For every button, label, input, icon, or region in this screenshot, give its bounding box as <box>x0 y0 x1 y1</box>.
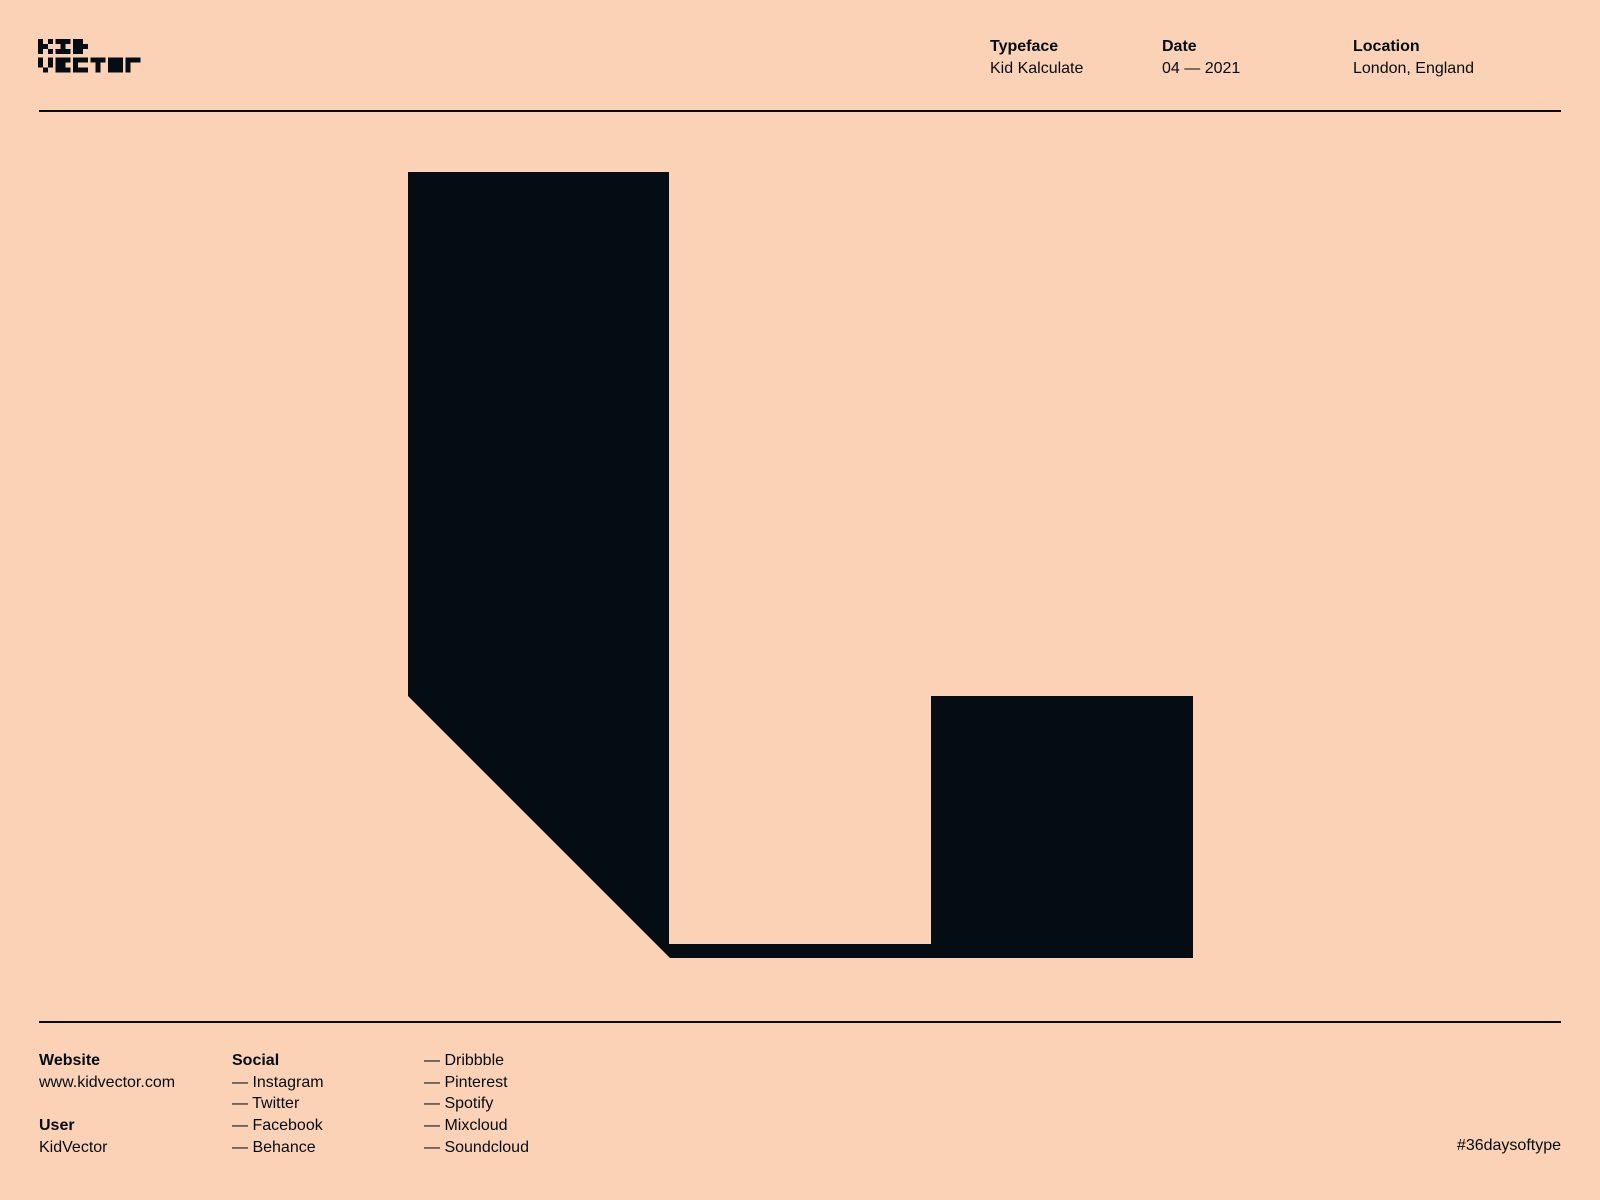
social-link-twitter[interactable]: — Twitter <box>232 1093 324 1115</box>
social-link-pinterest[interactable]: — Pinterest <box>424 1072 529 1094</box>
letter-glyph-shape <box>408 172 1193 958</box>
footer-social-column-2: — Dribbble — Pinterest — Spotify — Mixcl… <box>424 1050 529 1159</box>
user-label: User <box>39 1115 107 1137</box>
hashtag-36daysoftype: #36daysoftype <box>1457 1135 1561 1157</box>
social-link-dribbble[interactable]: — Dribbble <box>424 1050 529 1072</box>
social-link-behance[interactable]: — Behance <box>232 1137 324 1159</box>
social-link-instagram[interactable]: — Instagram <box>232 1072 324 1094</box>
letter-glyph-artwork <box>0 0 1600 1200</box>
social-link-spotify[interactable]: — Spotify <box>424 1093 529 1115</box>
footer-divider <box>39 1021 1561 1023</box>
footer-user-block: User KidVector <box>39 1115 107 1158</box>
poster-page: Typeface Kid Kalculate Date 04 — 2021 Lo… <box>0 0 1600 1200</box>
social-heading: Social <box>232 1050 324 1072</box>
social-link-mixcloud[interactable]: — Mixcloud <box>424 1115 529 1137</box>
social-link-facebook[interactable]: — Facebook <box>232 1115 324 1137</box>
footer-social-column-1: Social — Instagram — Twitter — Facebook … <box>232 1050 324 1159</box>
website-link[interactable]: www.kidvector.com <box>39 1072 175 1094</box>
social-link-soundcloud[interactable]: — Soundcloud <box>424 1137 529 1159</box>
website-label: Website <box>39 1050 175 1072</box>
user-value: KidVector <box>39 1137 107 1159</box>
footer-website-block: Website www.kidvector.com <box>39 1050 175 1093</box>
